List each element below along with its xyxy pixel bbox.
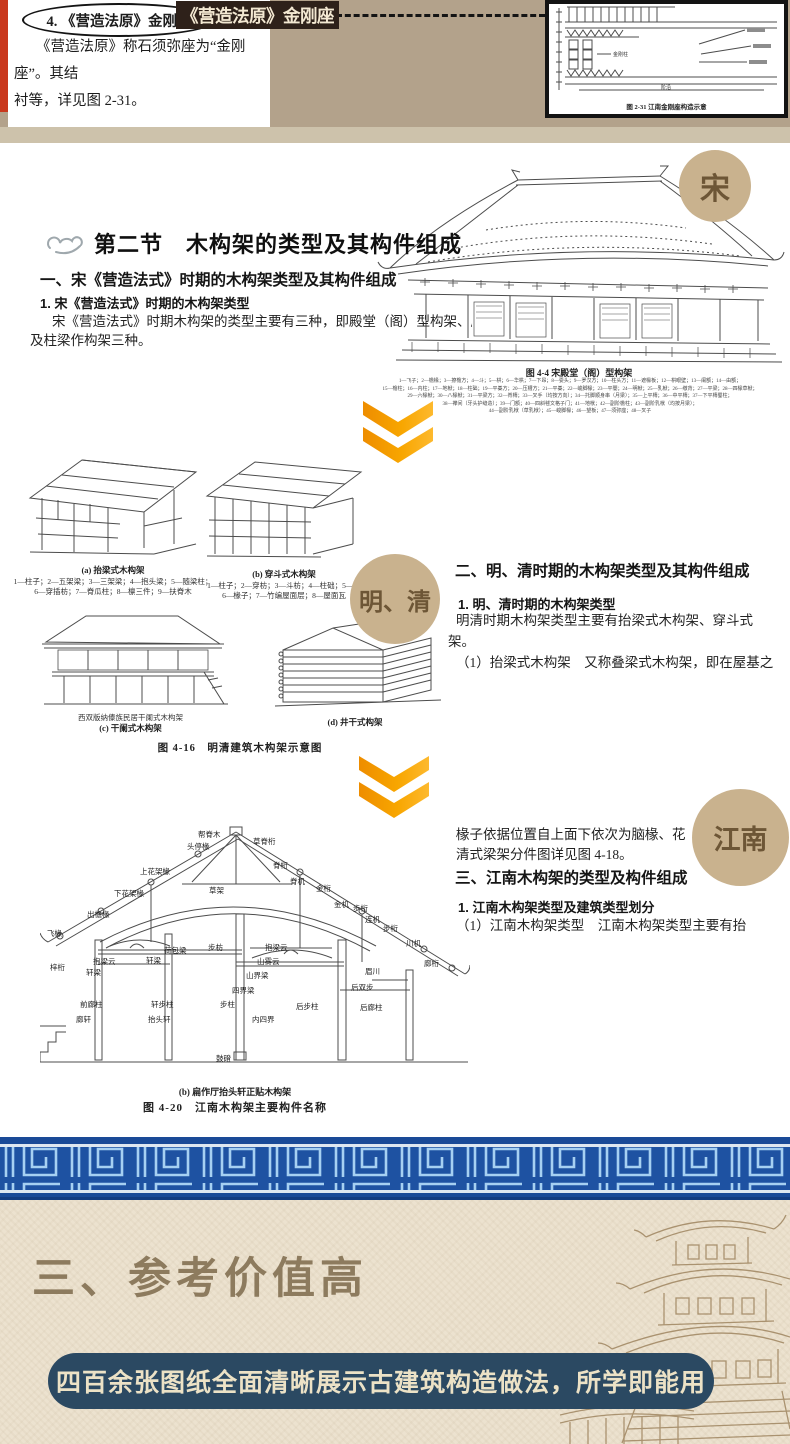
highlight-badge: 《营造法原》金刚座 [176,1,339,29]
component-label: 眉川 [365,966,380,977]
component-label: 后双步 [351,982,374,993]
component-label: 抱梁云 [265,942,288,953]
component-label: 步柱 [220,999,235,1010]
component-label: 金桁 [316,883,331,894]
product-detail-page: 4. 《营造法原》金刚座 《营造法原》称石须弥座为“金刚座”。其结 衬等，详见图… [0,0,790,1444]
promo-banner: 四百余张图纸全面清晰展示古建筑构造做法，所学即能用 [48,1353,714,1409]
tailiang-frame-drawing [24,446,202,562]
figure-4-20-sub-caption: (b) 扁作厅抬头轩正贴木构架 [40,1085,430,1098]
jiangnan-paragraph-line1: （1）江南木构架类型 江南木构架类型主要有抬 [456,916,790,935]
double-chevron-down-icon [361,401,435,463]
fig-b-caption: (b) 穿斗式木构架 [203,568,365,580]
component-label: 川机 [406,938,421,949]
component-label: 轩步柱 [151,999,174,1010]
component-label: 连机 [365,914,380,925]
meander-divider-band [0,1137,790,1200]
song-paragraph-line2: 及柱梁作构架三种。 [30,331,152,350]
section-header: 第二节 木构架的类型及其构件组成 [46,227,462,259]
illegible-label-bar [747,28,765,32]
subheading-jiangnan: 1. 江南木构架类型及建筑类型划分 [458,897,654,916]
component-label: 内四界 [252,1014,275,1025]
component-label: 抬头轩 [148,1014,171,1025]
component-label: 前廊柱 [80,999,103,1010]
component-label: 帮脊木 [198,829,221,840]
component-label: 山界梁 [246,970,269,981]
heading-mingqing: 二、明、清时期的木构架类型及其构件组成 [455,559,790,581]
double-chevron-down-icon [357,756,431,818]
label-line: 6—穿插枋；7—脊瓜柱；8—檩三件；9—扶脊木 [10,587,216,597]
fig-b-labels: 1—柱子；2—穿枋；3—斗枋；4—柱础；5—檩6—椽子；7—竹编屋面层；8—屋面… [203,581,365,601]
figure-4-20-caption: 图 4-20 江南木构架主要构件名称 [40,1099,430,1115]
component-label: 步枋 [208,942,223,953]
heading-song-types: 一、宋《营造法式》时期的木构架类型及其构件组成 [40,268,397,290]
component-label: 飞椽 [47,928,62,939]
figure-2-31-label-jieyan: 阶沿 [661,84,671,91]
chuandou-frame-drawing [203,450,365,564]
dynasty-badge-song: 宋 [679,150,751,222]
figure-2-31-caption: 图 2-31 江南金刚座构造示意 [549,101,784,111]
section-title-text: 木构架的类型及其构件组成 [186,232,462,257]
jiangnan-cross-section-diagram: 帮脊木头停椽草脊桁脊桁上花架椽脊机草架金桁下花架椽金机步桁出檐椽连机步桁飞椽川机… [40,822,470,1084]
component-label: 山雾云 [257,956,280,967]
component-label: 头停椽 [187,841,210,852]
section-gap-strip [0,127,790,143]
excerpt-line-1: 《营造法原》称石须弥座为“金刚座”。其结 [14,34,266,88]
subheading-song-types: 1. 宋《营造法式》时期的木构架类型 [40,293,249,312]
ganlan-stilt-house-drawing [28,606,233,712]
fig-d-caption: (d) 井干式构架 [255,716,455,728]
component-label: 金机 [334,899,349,910]
parts-list-line: 1—飞子；2—檐椽；3—撩檐方；4—斗；5—栱；6—华栱；7—下昂；8—耍头；9… [352,378,788,386]
component-label: 脊机 [290,876,305,887]
component-label: 步桁 [383,923,398,934]
component-label: 脊桁 [273,860,288,871]
label-line: 6—椽子；7—竹编屋面层；8—屋面瓦 [203,591,365,601]
component-label: 梓桁 [50,962,65,973]
page-edge-marker [0,0,8,112]
component-label: 廊轩 [76,1014,91,1025]
component-label: 抱梁云 [93,956,116,967]
component-label: 荷包梁 [164,945,187,956]
mingqing-paragraph-line3: （1）抬梁式木构架 又称叠梁式木构架，即在屋基之 [456,653,790,672]
promo-banner-text: 四百余张图纸全面清晰展示古建筑构造做法，所学即能用 [56,1363,706,1399]
component-label: 廊桁 [424,958,439,969]
parts-list-line: 29—六椽栿；30—八椽栿；31—平梁方；32—脊槫；33—叉手（均按方向）；3… [352,393,788,401]
fig-c-caption: (c) 干阑式木构架 [28,722,233,734]
figure-4-16-caption: 图 4-16 明清建筑木构架示意图 [60,740,420,755]
excerpt-body-text: 《营造法原》称石须弥座为“金刚座”。其结 衬等，详见图 2-31。 [14,34,266,115]
component-label: 后步柱 [296,1001,319,1012]
label-line: 1—柱子；2—五架梁；3—三架梁；4—抱头梁；5—随梁柱； [10,577,216,587]
component-label: 出檐椽 [87,909,110,920]
component-label: 草脊桁 [253,836,276,847]
label-line: 1—柱子；2—穿枋；3—斗枋；4—柱础；5—檩 [203,581,365,591]
illegible-label-bar [749,60,767,64]
component-label: 轩梁 [86,967,101,978]
excerpt-line-2: 衬等，详见图 2-31。 [14,88,266,115]
jiangnan-intro-line2: 清式梁架分件图详见图 4-18。 [456,845,633,864]
mingqing-paragraph-line1: 明清时期木构架类型主要有抬梁式木构架、穿斗式 [456,611,790,630]
figure-2-31-label-jingangzhu: 金刚柱 [613,51,628,58]
dynasty-badge-ming-qing: 明、清 [350,554,440,644]
figure-2-31: 金刚柱 阶沿 图 2-31 江南金刚座构造示意 [545,0,788,118]
component-label: 草架 [209,885,224,896]
component-label: 步桁 [353,903,368,914]
song-paragraph-line1: 宋《营造法式》时期木构架的类型主要有三种，即殿堂（阁）型构架、厅堂（阁） [52,312,472,331]
promo-title: 三、参考价值高 [32,1244,368,1306]
illegible-label-bar [753,44,771,48]
region-badge-jiangnan: 江南 [692,789,789,886]
parts-list-line: 15—檐柱；16—内柱；17—地栿；18—柱础；19—平棊方；20—压槽方；21… [352,386,788,394]
fig-a-labels: 1—柱子；2—五架梁；3—三架梁；4—抱头梁；5—随梁柱；6—穿插枋；7—脊瓜柱… [10,577,216,597]
section-label: 第二节 [94,232,163,257]
component-label: 上花架椽 [140,866,170,877]
meander-pattern [0,1137,790,1200]
component-label: 四界梁 [232,985,255,996]
cloud-ornament-icon [46,230,86,256]
component-label: 鼓磴 [216,1053,231,1064]
component-label: 下花架椽 [114,888,144,899]
dashed-connector-right [336,14,545,17]
cross-section-drawing [40,822,470,1084]
component-label: 轩梁 [146,955,161,966]
section-title: 第二节 木构架的类型及其构件组成 [94,227,462,259]
fig-a-caption: (a) 抬梁式木构架 [24,564,202,576]
component-label: 后廊柱 [360,1002,383,1013]
